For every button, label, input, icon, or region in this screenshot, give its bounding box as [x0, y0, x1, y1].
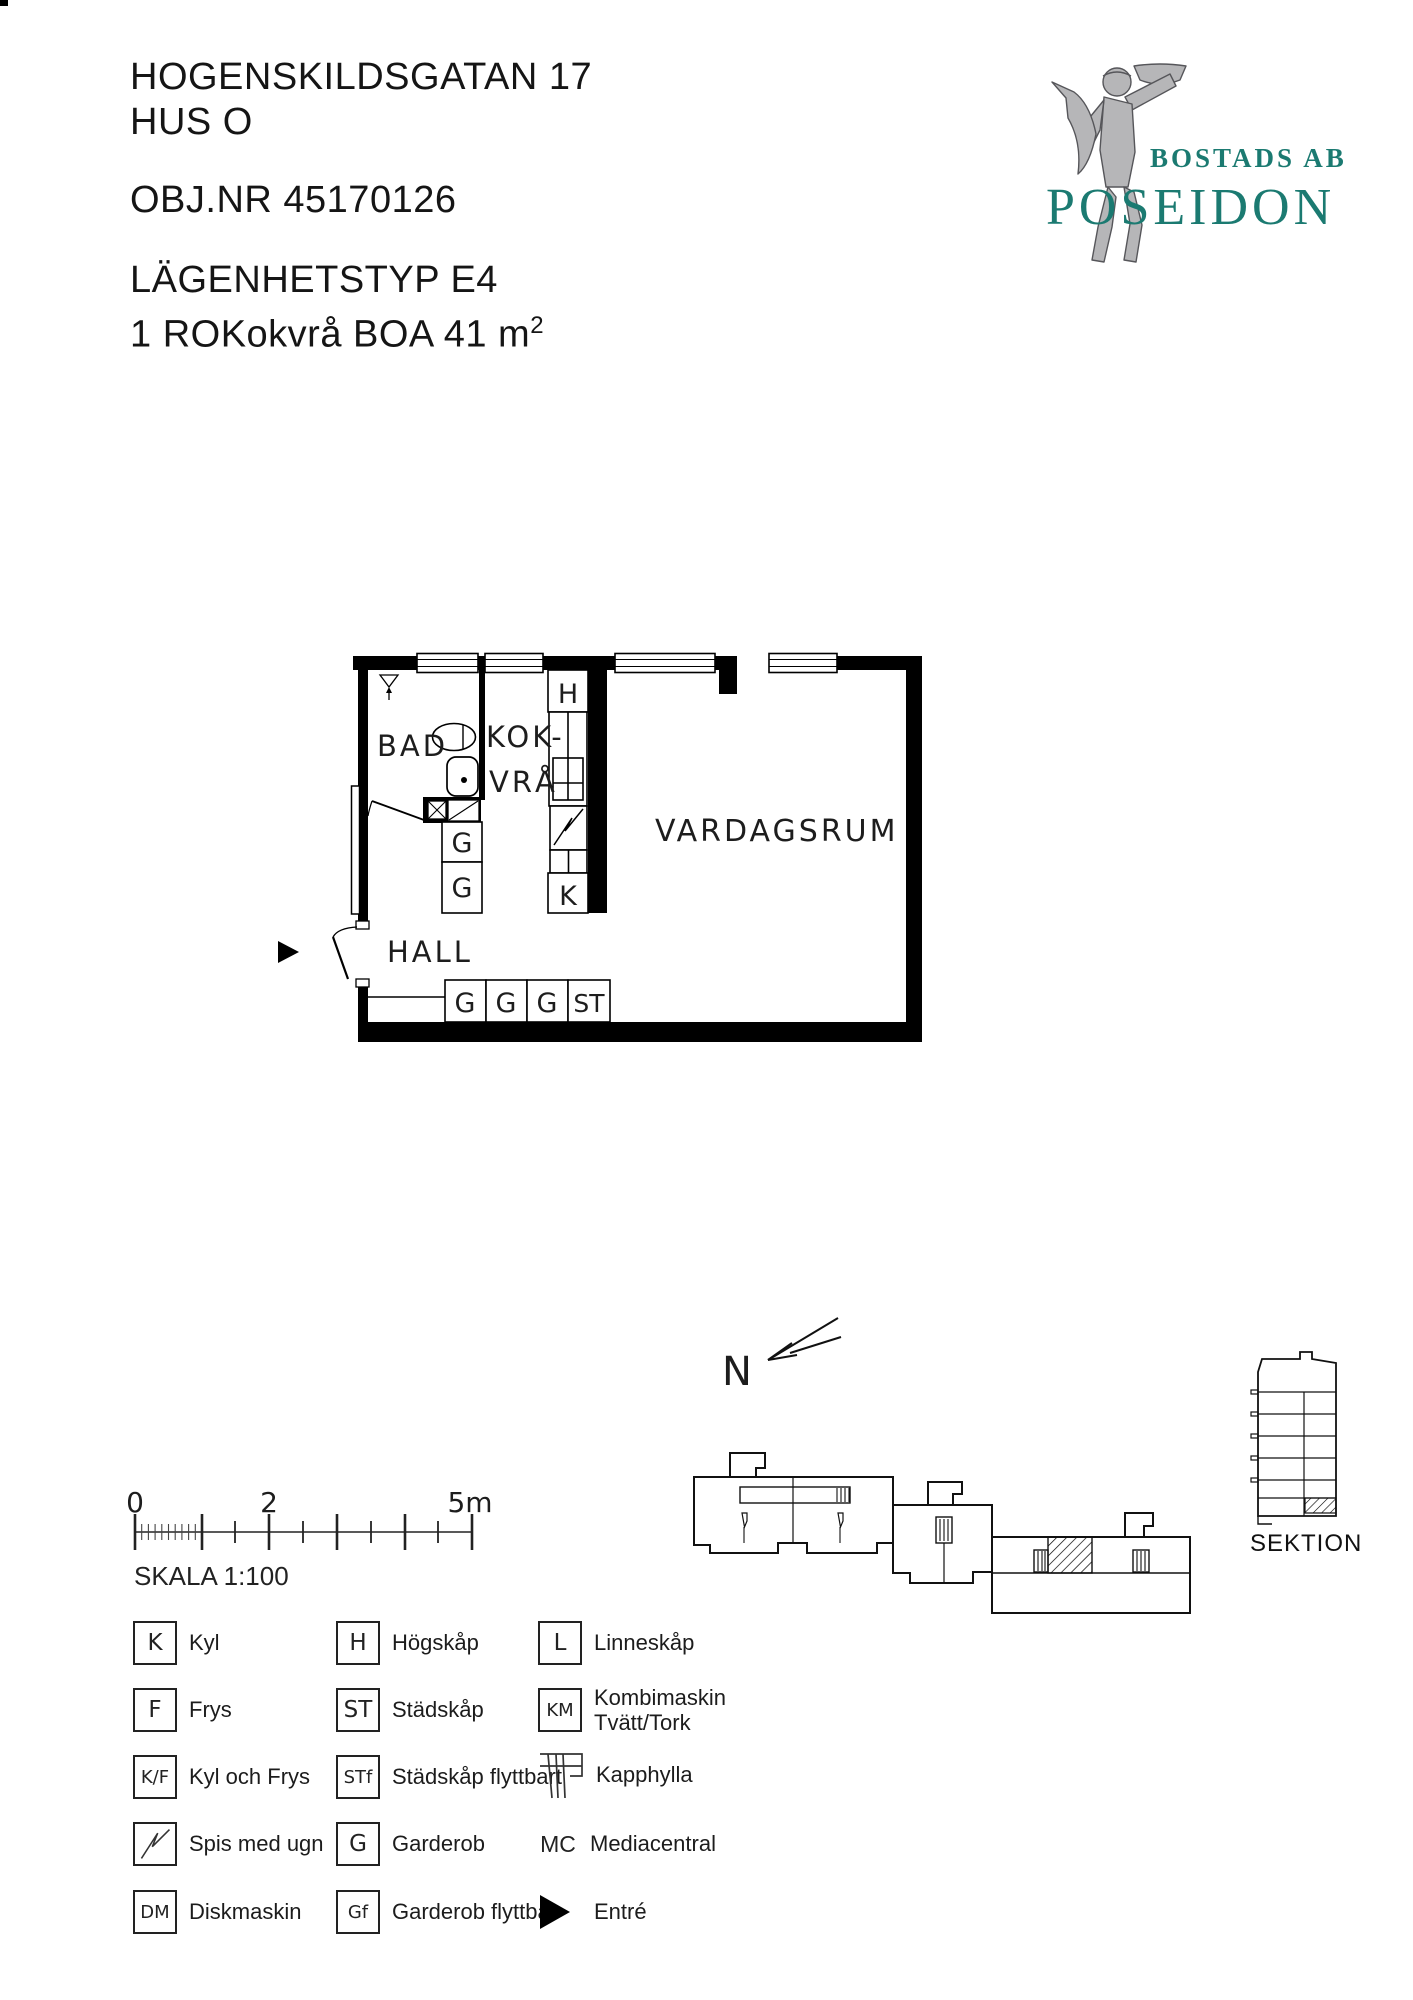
- cab-label-k: K: [559, 881, 578, 912]
- legend-sym-kf: K/F: [133, 1755, 177, 1799]
- legend-label: Städskåp flyttbart: [392, 1764, 562, 1790]
- room-label-bad: BAD: [377, 729, 448, 763]
- legend-label: Diskmaskin: [189, 1899, 301, 1925]
- legend-sym-h: H: [336, 1621, 380, 1665]
- legend-item-linneskap: L Linneskåp: [538, 1621, 694, 1665]
- cab-label-h: H: [558, 679, 578, 710]
- legend-label: Garderob: [392, 1831, 485, 1857]
- scale-caption: SKALA 1:100: [134, 1561, 289, 1592]
- apartment-type: LÄGENHETSTYP E4: [130, 258, 544, 303]
- legend-label: Kyl: [189, 1630, 220, 1656]
- legend-label: Mediacentral: [590, 1831, 716, 1857]
- section-label: SEKTION: [1250, 1530, 1362, 1558]
- floorplan-drawing: BAD KOK- VRÅ VARDAGSRUM HALL H K G G G G…: [270, 648, 940, 1050]
- logo-company-prefix: BOSTADS AB: [1150, 143, 1347, 174]
- bath-door: [368, 801, 424, 820]
- scale-tick-2: 2: [260, 1486, 278, 1519]
- north-arrow: N: [700, 1305, 850, 1410]
- legend-sym-k: K: [133, 1621, 177, 1665]
- left-window: [352, 786, 360, 914]
- legend-label: Kombimaskin Tvätt/Tork: [594, 1685, 726, 1735]
- scan-corner-mark: [0, 0, 8, 6]
- legend-item-diskmaskin: DM Diskmaskin: [133, 1890, 301, 1934]
- legend-item-mediacentral: MC Mediacentral: [538, 1822, 716, 1866]
- room-label-kok1: KOK-: [486, 720, 565, 754]
- object-number: OBJ.NR 45170126: [130, 178, 456, 223]
- room-label-kok2: VRÅ: [489, 765, 558, 799]
- entre-icon: [540, 1895, 570, 1929]
- room-label-hall: HALL: [387, 935, 473, 969]
- cab-label-row-st: ST: [573, 989, 605, 1018]
- legend-sym-km: KM: [538, 1688, 582, 1732]
- room-label-vardagsrum: VARDAGSRUM: [655, 814, 899, 849]
- legend-label: Städskåp: [392, 1697, 484, 1723]
- legend-item-garderob-flyttbar: Gf Garderob flyttbar: [336, 1890, 557, 1934]
- legend-label: Högskåp: [392, 1630, 479, 1656]
- legend-sym-st: ST: [336, 1688, 380, 1732]
- legend-label: Kyl och Frys: [189, 1764, 310, 1790]
- address-line2: HUS O: [130, 100, 592, 145]
- logo-company-name: POSEIDON: [1046, 178, 1335, 237]
- cab-label-g1: G: [452, 828, 473, 859]
- legend-item-garderob: G Garderob: [336, 1822, 485, 1866]
- legend-sym-gf: Gf: [336, 1890, 380, 1934]
- apartment-area: 1 ROKokvrå BOA 41 m2: [130, 303, 544, 358]
- legend-label: Linneskåp: [594, 1630, 694, 1656]
- legend-label: Entré: [594, 1899, 647, 1925]
- entry-arrow-icon: [278, 941, 299, 963]
- legend-sym-g: G: [336, 1822, 380, 1866]
- apartment-type-block: LÄGENHETSTYP E4 1 ROKokvrå BOA 41 m2: [130, 258, 544, 358]
- section-drawing: [1235, 1340, 1355, 1540]
- cab-label-row-g2: G: [496, 988, 517, 1019]
- legend-item-hogskap: H Högskåp: [336, 1621, 479, 1665]
- scale-tick-5m: 5m: [447, 1486, 492, 1519]
- legend-item-frys: F Frys: [133, 1688, 232, 1732]
- address-line1: HOGENSKILDSGATAN 17: [130, 55, 592, 100]
- legend-label: Spis med ugn: [189, 1831, 324, 1857]
- legend-label: Frys: [189, 1697, 232, 1723]
- legend-item-entre: Entré: [540, 1890, 647, 1934]
- legend-sym-f: F: [133, 1688, 177, 1732]
- floorplan-page: HOGENSKILDSGATAN 17 HUS O OBJ.NR 4517012…: [0, 0, 1413, 2000]
- legend-item-kapphylla: Kapphylla: [538, 1753, 693, 1797]
- vent-icon: [380, 675, 398, 700]
- address-block: HOGENSKILDSGATAN 17 HUS O: [130, 55, 592, 145]
- washbasin-icon: [447, 757, 478, 796]
- square-meter-sup: 2: [530, 312, 544, 339]
- entry-door: [333, 921, 369, 987]
- cab-label-row-g3: G: [537, 988, 558, 1019]
- north-label: N: [722, 1349, 752, 1395]
- scale-tick-0: 0: [126, 1486, 144, 1519]
- legend-sym-stf: STf: [336, 1755, 380, 1799]
- legend-item-stadskap-flyttbart: STf Städskåp flyttbart: [336, 1755, 562, 1799]
- spis-icon: [133, 1822, 177, 1866]
- section-hatch-marker: [1305, 1498, 1336, 1513]
- cab-label-row-g1: G: [455, 988, 476, 1019]
- legend-sym-l: L: [538, 1621, 582, 1665]
- legend-label: Kapphylla: [596, 1762, 693, 1788]
- scale-bar: 0 2 5m: [110, 1480, 510, 1560]
- legend-label: Garderob flyttbar: [392, 1899, 557, 1925]
- legend-sym-mc: MC: [538, 1824, 578, 1864]
- kapphylla-icon: [538, 1750, 584, 1800]
- walls: [353, 656, 922, 1042]
- shaft-symbols: [428, 800, 479, 821]
- legend-item-spis: Spis med ugn: [133, 1822, 324, 1866]
- legend-sym-dm: DM: [133, 1890, 177, 1934]
- legend-item-kombimaskin: KM Kombimaskin Tvätt/Tork: [538, 1688, 726, 1732]
- cab-label-g2: G: [452, 873, 473, 904]
- elevation-hatch-marker: [1048, 1537, 1092, 1573]
- legend-item-kyl: K Kyl: [133, 1621, 220, 1665]
- legend-item-kyl-och-frys: K/F Kyl och Frys: [133, 1755, 310, 1799]
- legend-item-stadskap: ST Städskåp: [336, 1688, 484, 1732]
